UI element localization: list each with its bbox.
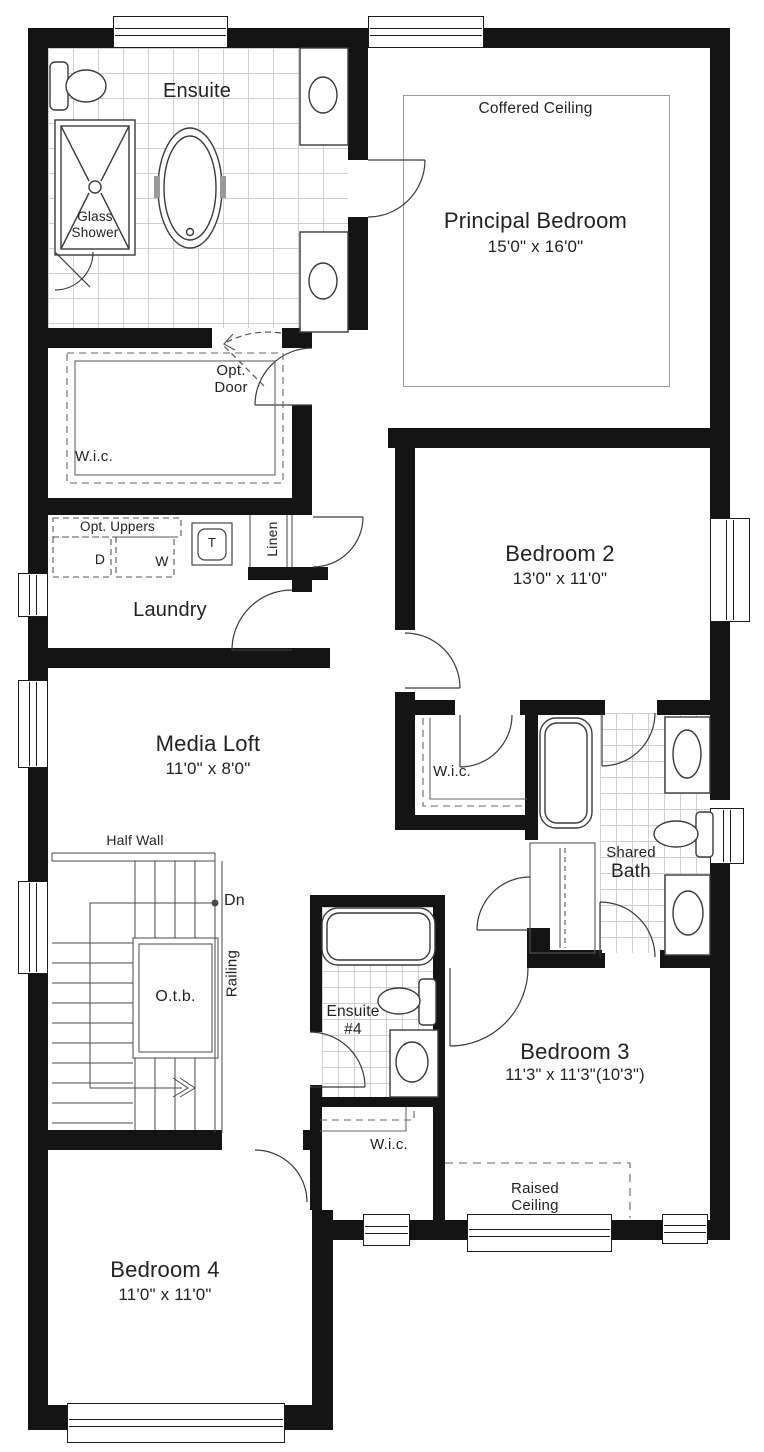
media-loft-dims: 11'0" x 8'0"	[128, 759, 288, 779]
shared-bath-label-line2: Bath	[596, 861, 666, 883]
vanity-sink	[390, 1030, 438, 1097]
hall-closet	[530, 843, 595, 953]
ensuite4-label: Ensuite #4	[311, 1003, 395, 1039]
bedroom2-dims: 13'0" x 11'0"	[480, 569, 640, 589]
bathtub	[154, 128, 226, 248]
media-loft-label: Media Loft	[128, 731, 288, 756]
glass-shower-label: Glass Shower	[60, 209, 130, 240]
raised-ceiling-label-line1: Raised	[490, 1180, 580, 1197]
stairs-down-label: Dn	[224, 892, 258, 910]
glass-shower-label-line1: Glass	[60, 209, 130, 225]
opt-uppers-label: Opt. Uppers	[60, 519, 175, 535]
optional-door-label: Opt. Door	[200, 362, 262, 397]
bedroom4-dims: 11'0" x 11'0"	[85, 1285, 245, 1305]
raised-ceiling-label-line2: Ceiling	[490, 1197, 580, 1214]
half-wall-label: Half Wall	[100, 832, 170, 848]
toilet	[50, 62, 106, 110]
coffered-ceiling-label: Coffered Ceiling	[403, 100, 668, 118]
laundry-label: Laundry	[120, 599, 220, 622]
wic-bedroom2-label: W.i.c.	[422, 763, 482, 780]
optional-door-label-line2: Door	[200, 379, 262, 396]
linen-label: Linen	[264, 514, 280, 564]
bedroom2-label: Bedroom 2	[480, 541, 640, 566]
railing-label: Railing	[223, 944, 240, 1004]
wic-bedroom3-label: W.i.c.	[354, 1136, 424, 1153]
vanity-sink	[300, 48, 348, 332]
open-to-below-label: O.t.b.	[133, 988, 218, 1006]
shared-bath-label-line1: Shared	[596, 844, 666, 861]
wic-principal-label: W.i.c.	[75, 448, 135, 465]
optional-door-label-line1: Opt.	[200, 362, 262, 379]
bathtub	[540, 718, 592, 828]
laundry-tub-label: T	[192, 536, 232, 551]
floor-plan: Ensuite Glass Shower Coffered Ceiling Pr…	[0, 0, 764, 1452]
raised-ceiling-label: Raised Ceiling	[490, 1180, 580, 1215]
glass-shower-label-line2: Shower	[60, 225, 130, 241]
dryer-label: D	[90, 551, 110, 567]
ensuite4-label-line2: #4	[311, 1021, 395, 1039]
ensuite4-label-line1: Ensuite	[311, 1003, 395, 1021]
principal-bedroom-dims: 15'0" x 16'0"	[403, 237, 668, 257]
bedroom3-dims: 11'3" x 11'3"(10'3")	[480, 1066, 670, 1085]
bathtub	[322, 908, 435, 965]
bedroom3-label: Bedroom 3	[495, 1039, 655, 1064]
washer-label: W	[152, 553, 172, 569]
bedroom4-label: Bedroom 4	[85, 1257, 245, 1282]
principal-bedroom-label: Principal Bedroom	[403, 208, 668, 233]
ensuite-label: Ensuite	[147, 80, 247, 103]
